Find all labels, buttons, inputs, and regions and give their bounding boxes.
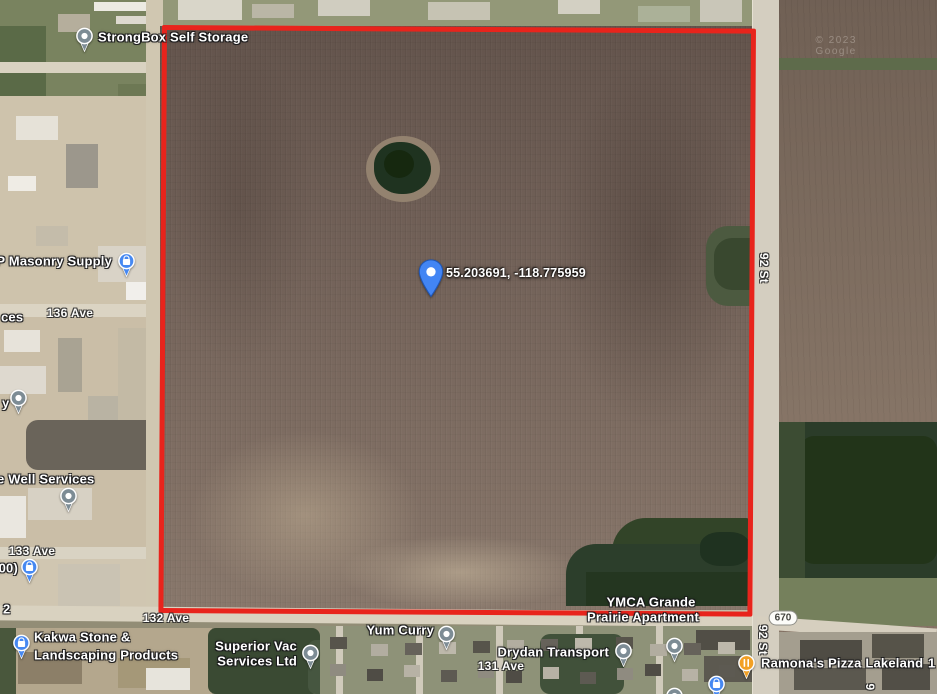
superior-vac-services-label[interactable]: Services Ltd — [217, 654, 297, 669]
street-label-132-ave: 132 Ave — [143, 611, 190, 625]
partial-pin-bottom-pin[interactable] — [664, 687, 685, 694]
strongbox-self-storage-pin[interactable] — [74, 27, 95, 52]
masonry-supply-label[interactable]: P Masonry Supply — [0, 254, 112, 269]
kakwa-stone-landscaping-label[interactable]: Kakwa Stone & — [34, 630, 131, 645]
partial-label-ces-label[interactable]: ces — [1, 310, 23, 325]
blue-poi-bottom-pin[interactable] — [706, 675, 727, 694]
street-label-131-ave: 131 Ave — [478, 659, 525, 673]
well-services-pin[interactable] — [58, 487, 79, 512]
superior-vac-services-pin[interactable] — [300, 644, 321, 669]
yum-curry-label[interactable]: Yum Curry — [366, 623, 434, 638]
partial-label-y-pin[interactable] — [8, 389, 29, 414]
well-services-label[interactable]: e Well Services — [0, 472, 94, 487]
ramonas-pizza-lakeland-label[interactable]: Ramona's Pizza Lakeland — [761, 656, 923, 671]
ymca-grande-prairie-apartment-label[interactable]: YMCA Grande — [606, 595, 695, 610]
imagery-watermark: © 2023 Google — [816, 35, 897, 57]
kakwa-stone-landscaping-pin[interactable] — [11, 634, 32, 659]
street-label-136-ave: 136 Ave — [47, 306, 94, 320]
kakwa-stone-landscaping-label[interactable]: Landscaping Products — [34, 648, 178, 663]
drydan-transport-label[interactable]: Drydan Transport — [497, 645, 609, 660]
partial-label-00-label[interactable]: (00) — [0, 561, 18, 576]
ymca-grande-prairie-apartment-label[interactable]: Prairie Apartment — [587, 610, 699, 625]
street-label-133-ave: 133 Ave — [9, 544, 56, 558]
masonry-supply-pin[interactable] — [116, 252, 137, 277]
dropped-pin-marker[interactable] — [418, 259, 444, 298]
partial-label-2-label[interactable]: 2 — [3, 602, 10, 617]
yum-curry-pin[interactable] — [436, 625, 457, 650]
strongbox-self-storage-label[interactable]: StrongBox Self Storage — [98, 30, 248, 45]
street-label-92-st: 92 St — [756, 625, 770, 655]
ramonas-pizza-lakeland-pin[interactable] — [736, 654, 757, 679]
drydan-transport-pin[interactable] — [613, 642, 634, 667]
ymca-grande-prairie-apartment-pin[interactable] — [664, 637, 685, 662]
coordinates-label[interactable]: 55.203691, -118.775959 — [446, 266, 586, 280]
superior-vac-services-label[interactable]: Superior Vac — [215, 639, 297, 654]
partial-label-1-label[interactable]: 1 — [928, 656, 935, 671]
street-label-9: 9 — [863, 684, 877, 691]
map-canvas[interactable]: 136 Ave133 Ave132 Ave131 Ave92 St92 St96… — [0, 0, 937, 694]
street-label-92-st: 92 St — [757, 253, 771, 283]
partial-label-y-label[interactable]: y — [2, 396, 9, 411]
highway-shield-670: 670 — [769, 611, 798, 626]
map-overlays: 136 Ave133 Ave132 Ave131 Ave92 St92 St96… — [0, 0, 937, 694]
partial-label-00-pin[interactable] — [19, 558, 40, 583]
